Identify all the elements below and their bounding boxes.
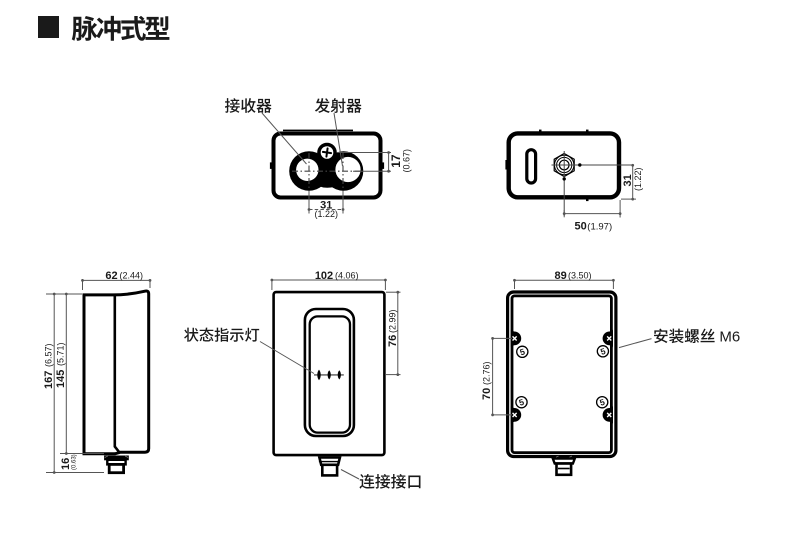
svg-text:(2.99): (2.99)	[388, 309, 398, 333]
svg-text:M6: M6	[719, 328, 740, 345]
svg-text:(1.22): (1.22)	[633, 167, 643, 191]
svg-text:(4.06): (4.06)	[335, 271, 359, 281]
svg-text:(0.63): (0.63)	[72, 454, 78, 470]
svg-text:(2.44): (2.44)	[120, 271, 144, 281]
svg-text:16: 16	[60, 458, 72, 470]
svg-text:50: 50	[575, 220, 587, 232]
svg-text:145: 145	[55, 370, 67, 388]
svg-text:(3.50): (3.50)	[568, 271, 592, 281]
svg-text:76: 76	[387, 335, 399, 347]
svg-text:(1.97): (1.97)	[587, 222, 612, 233]
svg-text:(2.76): (2.76)	[482, 361, 492, 385]
svg-text:167: 167	[43, 371, 55, 389]
svg-text:89: 89	[555, 270, 567, 282]
svg-text:70: 70	[481, 388, 493, 400]
svg-text:(1.22): (1.22)	[315, 209, 339, 219]
svg-text:62: 62	[105, 270, 117, 282]
svg-text:102: 102	[315, 270, 333, 282]
svg-text:(0.67): (0.67)	[402, 149, 412, 173]
svg-text:(6.57): (6.57)	[44, 343, 54, 367]
svg-text:(5.71): (5.71)	[56, 342, 66, 366]
